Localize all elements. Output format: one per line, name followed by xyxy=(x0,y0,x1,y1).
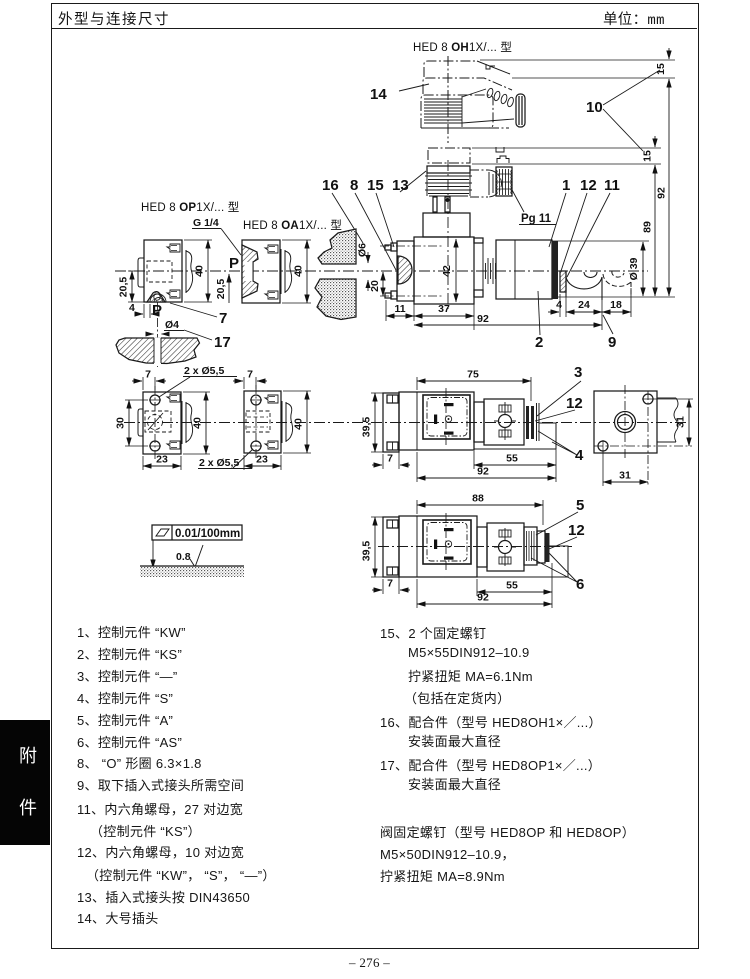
svg-text:0.01/100mm: 0.01/100mm xyxy=(175,528,240,540)
svg-text:30: 30 xyxy=(115,417,127,429)
svg-text:92: 92 xyxy=(477,466,489,478)
svg-text:24: 24 xyxy=(578,299,590,311)
svg-text:HED 8 OP1X/... 型: HED 8 OP1X/... 型 xyxy=(141,200,239,214)
svg-text:Ø4: Ø4 xyxy=(165,319,179,331)
svg-text:0.8: 0.8 xyxy=(176,551,191,563)
svg-text:2 x Ø5,5: 2 x Ø5,5 xyxy=(184,365,224,377)
svg-text:4: 4 xyxy=(129,302,135,314)
svg-text:8: 8 xyxy=(350,177,358,194)
svg-text:31: 31 xyxy=(675,416,687,428)
svg-text:55: 55 xyxy=(506,453,518,465)
svg-text:40: 40 xyxy=(194,265,206,277)
svg-text:20,5: 20,5 xyxy=(215,279,227,300)
svg-text:12: 12 xyxy=(568,522,585,539)
svg-text:14: 14 xyxy=(370,86,387,103)
svg-text:11: 11 xyxy=(604,177,620,194)
svg-text:39,5: 39,5 xyxy=(361,541,373,562)
svg-text:9: 9 xyxy=(608,334,616,351)
svg-text:7: 7 xyxy=(387,453,393,465)
svg-text:89: 89 xyxy=(642,221,654,233)
svg-text:20,5: 20,5 xyxy=(118,277,130,298)
svg-text:15: 15 xyxy=(367,177,384,194)
svg-text:12: 12 xyxy=(566,395,583,412)
svg-text:3: 3 xyxy=(574,364,582,381)
svg-text:11: 11 xyxy=(394,303,405,315)
svg-text:5: 5 xyxy=(576,497,584,514)
svg-text:4: 4 xyxy=(556,299,562,311)
svg-text:7: 7 xyxy=(145,369,151,381)
svg-text:P: P xyxy=(229,255,239,272)
svg-text:Ø6: Ø6 xyxy=(357,243,369,257)
svg-text:17: 17 xyxy=(214,334,231,351)
svg-text:20: 20 xyxy=(369,280,381,292)
svg-text:10: 10 xyxy=(586,99,603,116)
svg-text:88: 88 xyxy=(472,493,484,505)
svg-text:12: 12 xyxy=(580,177,597,194)
svg-text:HED 8 OA1X/... 型: HED 8 OA1X/... 型 xyxy=(243,218,342,232)
svg-text:23: 23 xyxy=(156,454,168,466)
svg-text:6: 6 xyxy=(576,576,584,593)
svg-text:15: 15 xyxy=(642,150,654,162)
svg-text:39,5: 39,5 xyxy=(361,417,373,438)
svg-text:7: 7 xyxy=(219,310,227,327)
svg-text:P: P xyxy=(152,302,162,319)
svg-text:4: 4 xyxy=(575,447,584,464)
svg-text:42: 42 xyxy=(441,265,453,277)
svg-text:92: 92 xyxy=(656,187,668,199)
svg-text:7: 7 xyxy=(247,369,253,381)
svg-text:Pg 11: Pg 11 xyxy=(521,213,552,225)
svg-text:Ø 39: Ø 39 xyxy=(628,257,640,280)
svg-text:2: 2 xyxy=(535,334,543,351)
svg-text:HED 8 OH1X/... 型: HED 8 OH1X/... 型 xyxy=(413,40,512,54)
svg-text:37: 37 xyxy=(438,303,450,315)
svg-text:92: 92 xyxy=(477,592,489,604)
svg-text:7: 7 xyxy=(387,578,393,590)
svg-text:1: 1 xyxy=(562,177,570,194)
svg-text:75: 75 xyxy=(467,369,479,381)
svg-text:23: 23 xyxy=(256,454,268,466)
svg-text:40: 40 xyxy=(293,265,305,277)
svg-text:18: 18 xyxy=(610,299,622,311)
svg-text:15: 15 xyxy=(655,63,667,75)
svg-text:16: 16 xyxy=(322,177,339,194)
svg-text:40: 40 xyxy=(192,417,204,429)
svg-text:92: 92 xyxy=(477,313,489,325)
svg-text:55: 55 xyxy=(506,580,518,592)
svg-text:40: 40 xyxy=(293,418,305,430)
svg-text:31: 31 xyxy=(619,470,631,482)
svg-text:G 1/4: G 1/4 xyxy=(193,217,219,229)
